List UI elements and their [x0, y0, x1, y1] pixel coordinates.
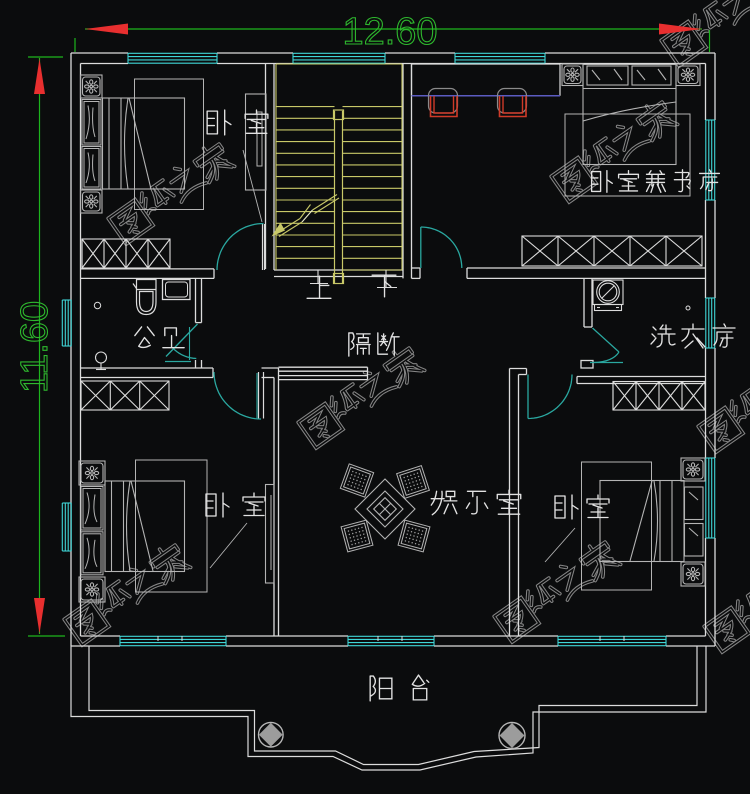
svg-text:11.60: 11.60: [14, 301, 56, 393]
svg-text:12.60: 12.60: [342, 11, 437, 53]
